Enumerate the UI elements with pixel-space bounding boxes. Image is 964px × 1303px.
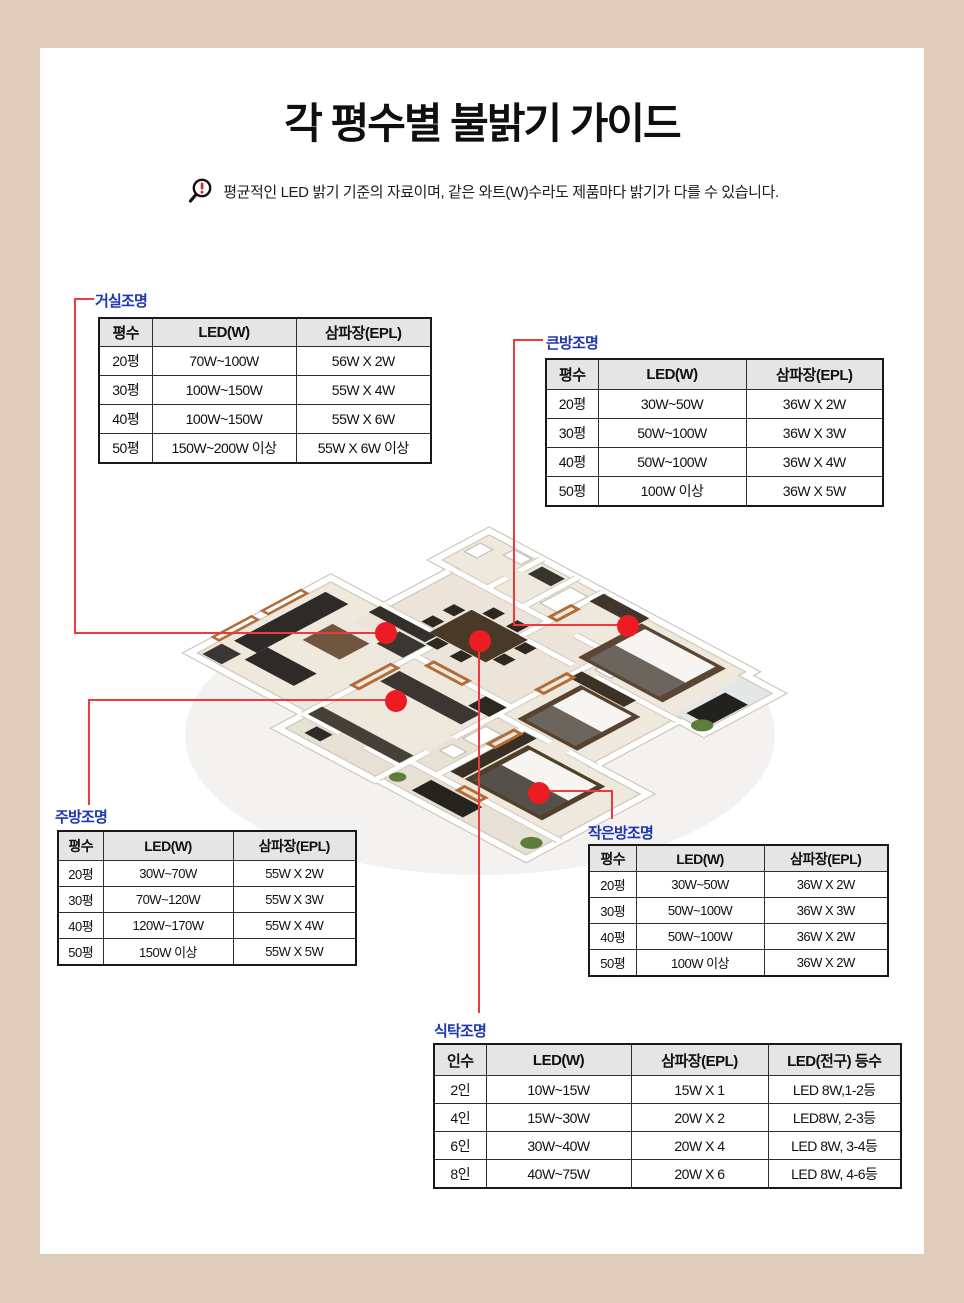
kitchen-lighting-table: 평수LED(W)삼파장(EPL)20평30W~70W55W X 2W30평70W… xyxy=(57,830,357,966)
table-cell: 100W 이상 xyxy=(636,950,764,977)
connector-bigroom-vert xyxy=(513,339,515,626)
table-cell: 50W~100W xyxy=(598,419,746,448)
table-cell: 50W~100W xyxy=(636,898,764,924)
marker-small-bedroom xyxy=(528,782,550,804)
table-cell: 50평 xyxy=(546,477,598,507)
connector-bigroom-stub xyxy=(513,339,543,341)
table-cell: 50평 xyxy=(589,950,636,977)
table-row: 4인15W~30W20W X 2LED8W, 2-3등 xyxy=(434,1104,901,1132)
connector-living-stub xyxy=(74,298,94,300)
table-cell: 55W X 4W xyxy=(233,913,356,939)
table-cell: LED8W, 2-3등 xyxy=(768,1104,901,1132)
table-row: 40평50W~100W36W X 4W xyxy=(546,448,883,477)
column-header: 평수 xyxy=(58,831,103,861)
table-label-living: 거실조명 xyxy=(95,290,147,311)
header-row: 평수LED(W)삼파장(EPL) xyxy=(99,318,431,347)
connector-smallroom-vert xyxy=(611,790,613,819)
column-header: 삼파장(EPL) xyxy=(296,318,431,347)
table-cell: 15W~30W xyxy=(486,1104,631,1132)
table-row: 20평30W~70W55W X 2W xyxy=(58,861,356,887)
column-header: 인수 xyxy=(434,1044,486,1076)
column-header: 평수 xyxy=(589,845,636,872)
table-cell: 55W X 6W 이상 xyxy=(296,434,431,464)
table-row: 30평70W~120W55W X 3W xyxy=(58,887,356,913)
table-label-smallroom: 작은방조명 xyxy=(588,822,653,843)
small-room-lighting-table: 평수LED(W)삼파장(EPL)20평30W~50W36W X 2W30평50W… xyxy=(588,844,889,977)
column-header: 삼파장(EPL) xyxy=(746,359,883,390)
connector-kitchen-horiz xyxy=(88,699,398,701)
table-cell: 20W X 2 xyxy=(631,1104,768,1132)
table-cell: 36W X 2W xyxy=(764,924,888,950)
table-cell: 20W X 4 xyxy=(631,1132,768,1160)
header-row: 평수LED(W)삼파장(EPL) xyxy=(589,845,888,872)
table-cell: 55W X 5W xyxy=(233,939,356,966)
table-cell: 30W~50W xyxy=(598,390,746,419)
table-cell: 30W~50W xyxy=(636,872,764,898)
header-row: 평수LED(W)삼파장(EPL) xyxy=(546,359,883,390)
table-row: 50평100W 이상36W X 5W xyxy=(546,477,883,507)
table-cell: 56W X 2W xyxy=(296,347,431,376)
table-row: 2인10W~15W15W X 1LED 8W,1-2등 xyxy=(434,1076,901,1104)
marker-kitchen xyxy=(385,690,407,712)
column-header: LED(W) xyxy=(636,845,764,872)
table-cell: 100W 이상 xyxy=(598,477,746,507)
table-cell: 70W~100W xyxy=(152,347,296,376)
connector-living-horiz xyxy=(74,632,388,634)
column-header: LED(W) xyxy=(486,1044,631,1076)
table-row: 40평50W~100W36W X 2W xyxy=(589,924,888,950)
table-cell: 50W~100W xyxy=(636,924,764,950)
table-cell: 30평 xyxy=(546,419,598,448)
table-cell: LED 8W,1-2등 xyxy=(768,1076,901,1104)
table-row: 30평50W~100W36W X 3W xyxy=(589,898,888,924)
table-label-bigroom: 큰방조명 xyxy=(546,332,598,353)
table-cell: 36W X 5W xyxy=(746,477,883,507)
table-cell: 36W X 2W xyxy=(746,390,883,419)
big-room-lighting-table: 평수LED(W)삼파장(EPL)20평30W~50W36W X 2W30평50W… xyxy=(545,358,884,507)
table-cell: 10W~15W xyxy=(486,1076,631,1104)
table-cell: 40W~75W xyxy=(486,1160,631,1189)
table-cell: 40평 xyxy=(546,448,598,477)
table-cell: 40평 xyxy=(58,913,103,939)
table-cell: 55W X 6W xyxy=(296,405,431,434)
table-row: 20평30W~50W36W X 2W xyxy=(546,390,883,419)
table-cell: 55W X 3W xyxy=(233,887,356,913)
column-header: LED(W) xyxy=(152,318,296,347)
table-row: 50평100W 이상36W X 2W xyxy=(589,950,888,977)
table-row: 40평100W~150W55W X 6W xyxy=(99,405,431,434)
table-label-dining: 식탁조명 xyxy=(434,1020,486,1041)
table-row: 8인40W~75W20W X 6LED 8W, 4-6등 xyxy=(434,1160,901,1189)
table-cell: 20평 xyxy=(589,872,636,898)
table-cell: 100W~150W xyxy=(152,405,296,434)
table-cell: 36W X 4W xyxy=(746,448,883,477)
table-label-kitchen: 주방조명 xyxy=(55,806,107,827)
table-cell: 150W 이상 xyxy=(103,939,233,966)
table-cell: 50평 xyxy=(58,939,103,966)
column-header: 삼파장(EPL) xyxy=(631,1044,768,1076)
connector-living-vert xyxy=(74,298,76,634)
page-title: 각 평수별 불밝기 가이드 xyxy=(0,90,964,151)
column-header: LED(W) xyxy=(598,359,746,390)
table-cell: 36W X 3W xyxy=(764,898,888,924)
table-cell: 30W~40W xyxy=(486,1132,631,1160)
table-cell: 36W X 2W xyxy=(764,872,888,898)
table-cell: 20평 xyxy=(546,390,598,419)
table-row: 50평150W~200W 이상55W X 6W 이상 xyxy=(99,434,431,464)
table-cell: 20W X 6 xyxy=(631,1160,768,1189)
table-cell: 55W X 2W xyxy=(233,861,356,887)
marker-dining-table xyxy=(469,630,491,652)
table-cell: 50W~100W xyxy=(598,448,746,477)
table-cell: 6인 xyxy=(434,1132,486,1160)
notice-bar: 평균적인 LED 밝기 기준의 자료이며, 같은 와트(W)수라도 제품마다 밝… xyxy=(0,176,964,206)
column-header: 평수 xyxy=(99,318,152,347)
table-cell: 30평 xyxy=(58,887,103,913)
table-cell: 150W~200W 이상 xyxy=(152,434,296,464)
table-cell: 36W X 2W xyxy=(764,950,888,977)
table-cell: 30평 xyxy=(589,898,636,924)
table-cell: 40평 xyxy=(99,405,152,434)
table-cell: 40평 xyxy=(589,924,636,950)
table-row: 20평70W~100W56W X 2W xyxy=(99,347,431,376)
table-cell: 2인 xyxy=(434,1076,486,1104)
table-cell: 15W X 1 xyxy=(631,1076,768,1104)
table-row: 20평30W~50W36W X 2W xyxy=(589,872,888,898)
table-row: 50평150W 이상55W X 5W xyxy=(58,939,356,966)
table-cell: 30W~70W xyxy=(103,861,233,887)
column-header: LED(W) xyxy=(103,831,233,861)
marker-living-room xyxy=(375,622,397,644)
table-cell: 70W~120W xyxy=(103,887,233,913)
table-cell: 120W~170W xyxy=(103,913,233,939)
column-header: 평수 xyxy=(546,359,598,390)
infographic-page: 각 평수별 불밝기 가이드 평균적인 LED 밝기 기준의 자료이며, 같은 와… xyxy=(0,0,964,1303)
notice-text: 평균적인 LED 밝기 기준의 자료이며, 같은 와트(W)수라도 제품마다 밝… xyxy=(223,181,779,202)
connector-kitchen-vert xyxy=(88,699,90,805)
table-cell: LED 8W, 3-4등 xyxy=(768,1132,901,1160)
column-header: 삼파장(EPL) xyxy=(233,831,356,861)
table-cell: 4인 xyxy=(434,1104,486,1132)
column-header: LED(전구) 등수 xyxy=(768,1044,901,1076)
table-cell: 8인 xyxy=(434,1160,486,1189)
connector-bigroom-horiz xyxy=(513,624,630,626)
dining-lighting-table: 인수LED(W)삼파장(EPL)LED(전구) 등수2인10W~15W15W X… xyxy=(433,1043,902,1189)
living-room-lighting-table: 평수LED(W)삼파장(EPL)20평70W~100W56W X 2W30평10… xyxy=(98,317,432,464)
table-cell: 55W X 4W xyxy=(296,376,431,405)
connector-dining-vert xyxy=(478,640,480,1013)
table-cell: 20평 xyxy=(58,861,103,887)
table-cell: 20평 xyxy=(99,347,152,376)
table-row: 6인30W~40W20W X 4LED 8W, 3-4등 xyxy=(434,1132,901,1160)
table-row: 40평120W~170W55W X 4W xyxy=(58,913,356,939)
header-row: 평수LED(W)삼파장(EPL) xyxy=(58,831,356,861)
table-cell: 50평 xyxy=(99,434,152,464)
table-cell: LED 8W, 4-6등 xyxy=(768,1160,901,1189)
header-row: 인수LED(W)삼파장(EPL)LED(전구) 등수 xyxy=(434,1044,901,1076)
marker-master-bedroom xyxy=(617,615,639,637)
table-cell: 36W X 3W xyxy=(746,419,883,448)
table-cell: 100W~150W xyxy=(152,376,296,405)
column-header: 삼파장(EPL) xyxy=(764,845,888,872)
table-row: 30평50W~100W36W X 3W xyxy=(546,419,883,448)
magnifier-exclamation-icon xyxy=(185,176,215,206)
table-row: 30평100W~150W55W X 4W xyxy=(99,376,431,405)
table-cell: 30평 xyxy=(99,376,152,405)
